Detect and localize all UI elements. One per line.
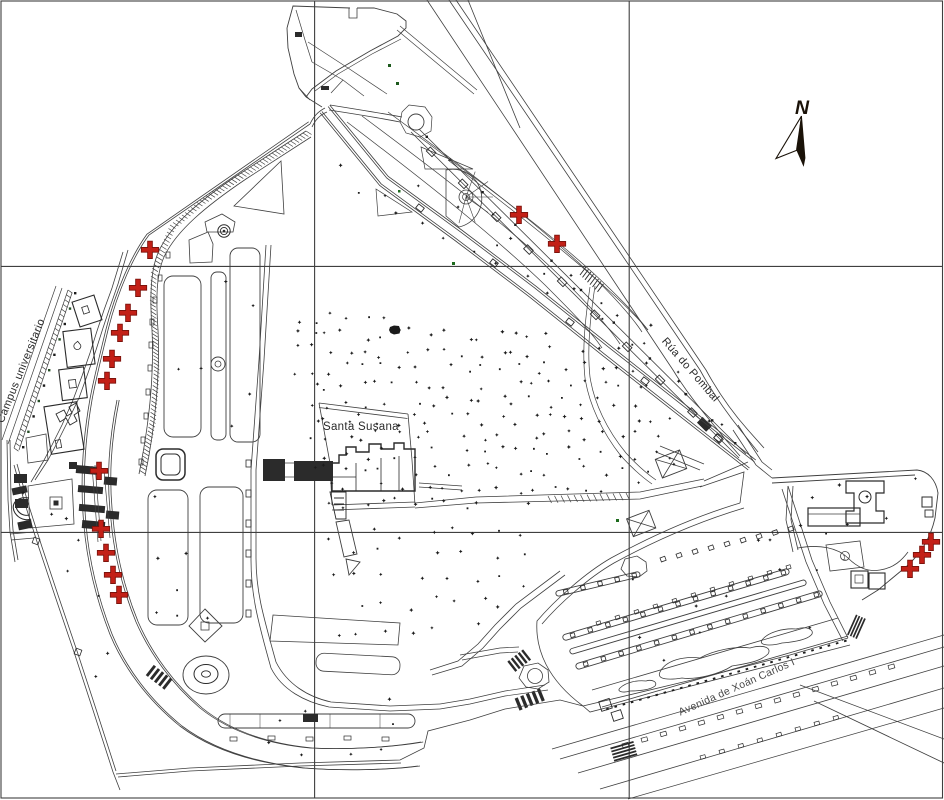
svg-text:Santa Susana: Santa Susana	[323, 421, 399, 433]
svg-text:N: N	[795, 97, 810, 119]
